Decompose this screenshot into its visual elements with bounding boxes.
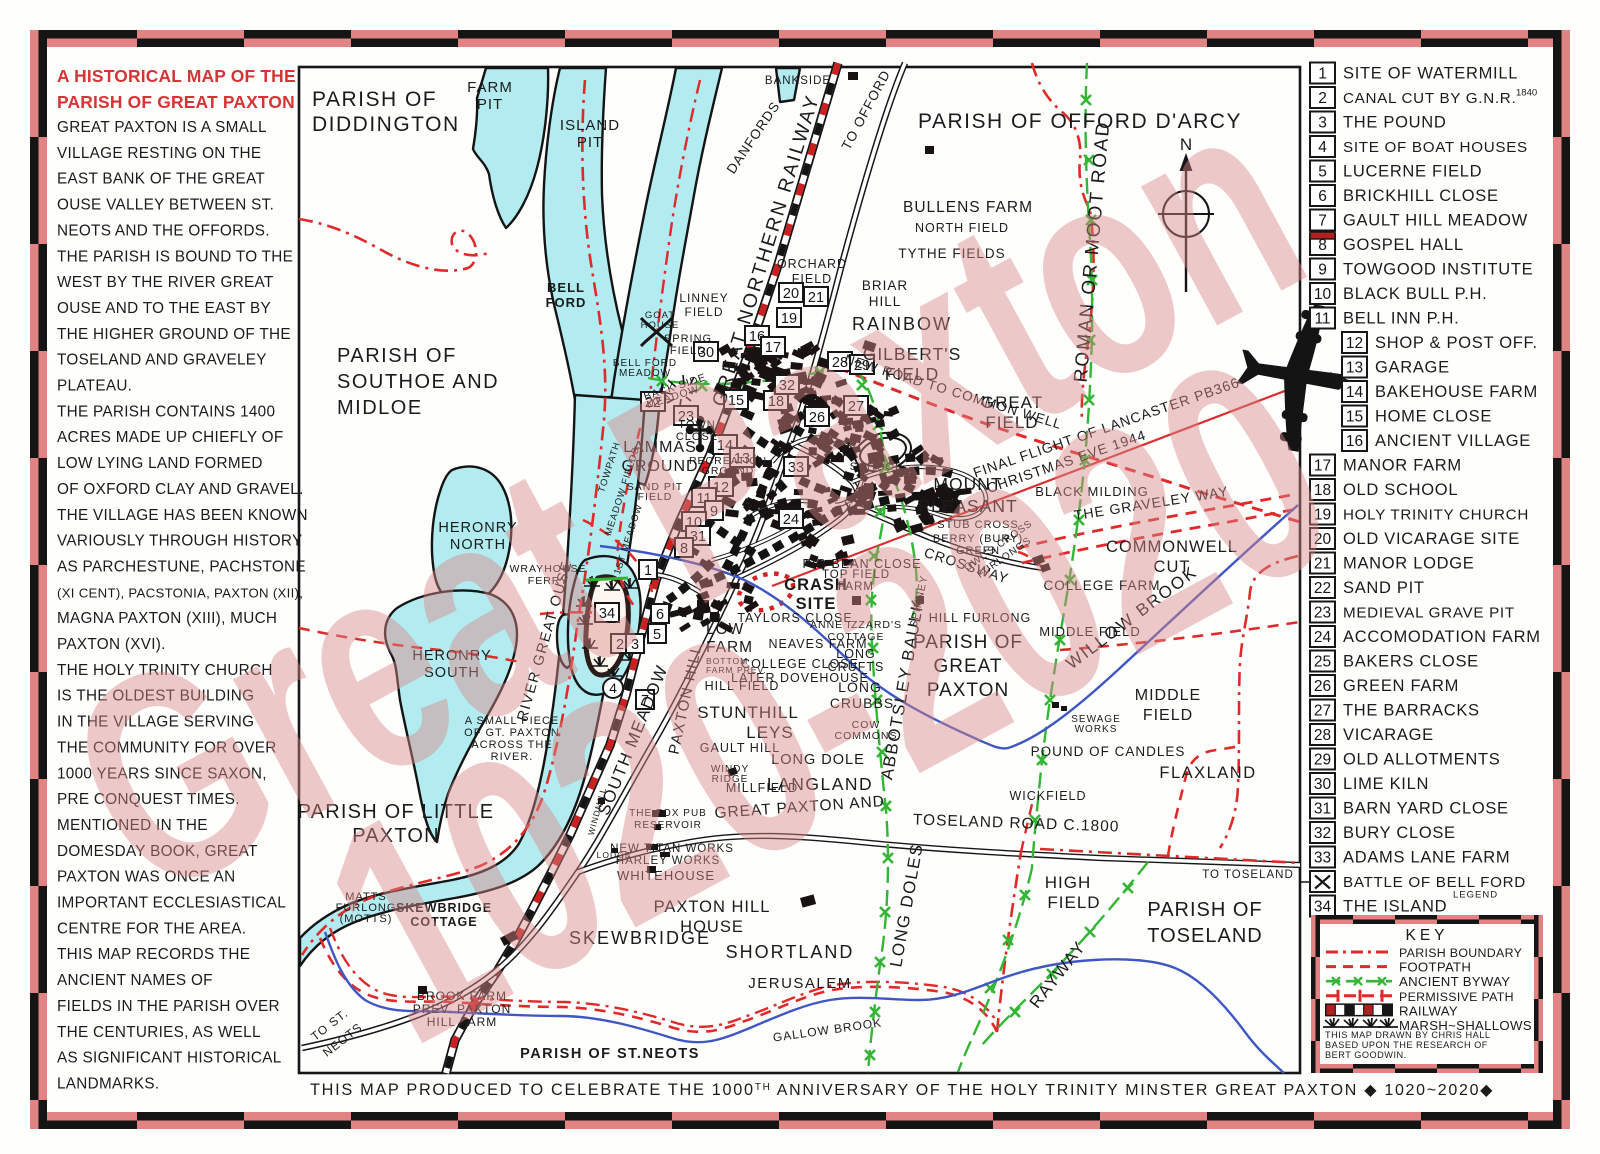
svg-text:FORD: FORD — [546, 295, 587, 310]
svg-text:31: 31 — [1314, 801, 1331, 818]
svg-text:OUSE AND TO THE EAST BY: OUSE AND TO THE EAST BY — [57, 300, 271, 317]
svg-text:1840: 1840 — [1516, 88, 1537, 99]
svg-text:FARM: FARM — [467, 79, 513, 96]
svg-text:GAULT HILL MEADOW: GAULT HILL MEADOW — [1343, 212, 1528, 230]
svg-text:15: 15 — [1346, 409, 1363, 426]
svg-text:KEY: KEY — [1405, 927, 1448, 944]
svg-text:1: 1 — [1318, 66, 1327, 83]
svg-text:PARISH OF GREAT PAXTON: PARISH OF GREAT PAXTON — [57, 92, 295, 112]
svg-text:NEOTS AND THE OFFORDS.: NEOTS AND THE OFFORDS. — [57, 222, 270, 239]
svg-text:ADAMS LANE FARM: ADAMS LANE FARM — [1343, 849, 1510, 867]
svg-text:26: 26 — [1314, 678, 1331, 695]
svg-text:25: 25 — [1314, 654, 1331, 671]
svg-text:33: 33 — [1314, 850, 1331, 867]
svg-text:HOLY TRINITY CHURCH: HOLY TRINITY CHURCH — [1343, 507, 1529, 524]
svg-text:VILLAGE RESTING ON THE: VILLAGE RESTING ON THE — [57, 145, 261, 162]
svg-text:SITE OF BOAT HOUSES: SITE OF BOAT HOUSES — [1343, 139, 1528, 156]
svg-text:AS SIGNIFICANT HISTORICAL: AS SIGNIFICANT HISTORICAL — [57, 1050, 282, 1067]
svg-text:OUSE VALLEY BETWEEN ST.: OUSE VALLEY BETWEEN ST. — [57, 197, 274, 214]
svg-text:LEGEND: LEGEND — [1453, 890, 1498, 901]
svg-text:BAKERS CLOSE: BAKERS CLOSE — [1343, 653, 1479, 671]
svg-text:6: 6 — [1318, 188, 1327, 205]
svg-text:PIT: PIT — [477, 96, 503, 113]
svg-text:14: 14 — [1346, 384, 1364, 401]
svg-text:PARISH OF: PARISH OF — [312, 88, 437, 111]
svg-text:VICARAGE: VICARAGE — [1343, 726, 1434, 744]
svg-text:MANOR FARM: MANOR FARM — [1343, 457, 1462, 475]
svg-text:OLD ALLOTMENTS: OLD ALLOTMENTS — [1343, 751, 1500, 769]
svg-text:29: 29 — [1314, 752, 1331, 769]
svg-text:THE PARISH IS BOUND TO THE: THE PARISH IS BOUND TO THE — [57, 248, 293, 265]
svg-text:LIME KILN: LIME KILN — [1343, 775, 1429, 793]
svg-text:GREAT PAXTON IS A SMALL: GREAT PAXTON IS A SMALL — [57, 119, 267, 136]
svg-text:30: 30 — [1314, 776, 1332, 793]
svg-text:BURY CLOSE: BURY CLOSE — [1343, 824, 1456, 842]
svg-text:3: 3 — [1318, 115, 1327, 132]
svg-text:PARISH OF: PARISH OF — [337, 345, 457, 367]
svg-text:BERT GOODWIN.: BERT GOODWIN. — [1325, 1050, 1407, 1060]
svg-text:PARISH BOUNDARY: PARISH BOUNDARY — [1399, 946, 1522, 960]
svg-text:OLD VICARAGE SITE: OLD VICARAGE SITE — [1343, 530, 1520, 548]
svg-text:CANAL CUT BY G.N.R.: CANAL CUT BY G.N.R. — [1343, 90, 1516, 107]
svg-text:SITE OF WATERMILL: SITE OF WATERMILL — [1343, 65, 1518, 83]
svg-text:PLATEAU.: PLATEAU. — [57, 378, 132, 395]
svg-text:DIDDINGTON: DIDDINGTON — [312, 113, 460, 136]
svg-text:FIELDS IN THE PARISH OVER: FIELDS IN THE PARISH OVER — [57, 998, 280, 1015]
svg-text:ANCIENT VILLAGE: ANCIENT VILLAGE — [1375, 432, 1531, 450]
svg-text:THE HIGHER GROUND OF THE: THE HIGHER GROUND OF THE — [57, 326, 291, 343]
svg-text:OLD SCHOOL: OLD SCHOOL — [1343, 481, 1458, 499]
svg-text:28: 28 — [1314, 727, 1331, 744]
svg-text:HIGH: HIGH — [1045, 873, 1092, 892]
svg-text:ACCOMODATION FARM: ACCOMODATION FARM — [1343, 628, 1541, 646]
svg-text:THE VILLAGE HAS BEEN KNOWN: THE VILLAGE HAS BEEN KNOWN — [57, 507, 308, 524]
svg-text:THE ISLAND: THE ISLAND — [1343, 898, 1447, 916]
svg-text:OF OXFORD CLAY AND GRAVEL.: OF OXFORD CLAY AND GRAVEL. — [57, 481, 304, 498]
svg-text:32: 32 — [1314, 825, 1331, 842]
svg-text:BARN YARD CLOSE: BARN YARD CLOSE — [1343, 800, 1509, 818]
svg-text:FOOTPATH: FOOTPATH — [1399, 960, 1471, 975]
svg-text:7: 7 — [1318, 213, 1327, 230]
svg-text:SHOP & POST OFF.: SHOP & POST OFF. — [1375, 334, 1538, 352]
svg-text:27: 27 — [1314, 703, 1331, 720]
svg-text:TOSELAND: TOSELAND — [1147, 925, 1262, 947]
svg-text:FIELD: FIELD — [1047, 893, 1100, 912]
svg-text:EAST BANK OF THE GREAT: EAST BANK OF THE GREAT — [57, 171, 265, 188]
svg-text:12: 12 — [1346, 335, 1363, 352]
svg-text:GARAGE: GARAGE — [1375, 359, 1450, 377]
svg-text:THE POUND: THE POUND — [1343, 114, 1446, 132]
svg-text:2: 2 — [1318, 90, 1327, 107]
svg-text:TO TOSELAND: TO TOSELAND — [1202, 869, 1294, 881]
svg-text:16: 16 — [1346, 433, 1363, 450]
svg-text:BAKEHOUSE FARM: BAKEHOUSE FARM — [1375, 383, 1538, 401]
svg-text:GREEN FARM: GREEN FARM — [1343, 677, 1459, 695]
svg-text:HOME CLOSE: HOME CLOSE — [1375, 408, 1492, 426]
svg-text:5: 5 — [1318, 164, 1327, 181]
svg-text:ANCIENT NAMES OF: ANCIENT NAMES OF — [57, 972, 213, 989]
svg-text:THE CENTURIES, AS WELL: THE CENTURIES, AS WELL — [57, 1024, 261, 1041]
svg-text:BELL: BELL — [547, 280, 585, 295]
svg-text:PIT: PIT — [577, 134, 603, 151]
svg-text:MEDIEVAL GRAVE PIT: MEDIEVAL GRAVE PIT — [1343, 605, 1515, 622]
svg-text:ISLAND: ISLAND — [560, 117, 620, 134]
svg-text:BLACK BULL P.H.: BLACK BULL P.H. — [1343, 285, 1487, 303]
svg-text:TOWGOOD INSTITUTE: TOWGOOD INSTITUTE — [1343, 261, 1533, 279]
svg-text:THIS MAP RECORDS THE: THIS MAP RECORDS THE — [57, 946, 250, 963]
svg-text:SOUTHOE AND: SOUTHOE AND — [337, 371, 499, 393]
svg-text:LOW LYING LAND FORMED: LOW LYING LAND FORMED — [57, 455, 263, 472]
svg-text:SHORTLAND: SHORTLAND — [726, 942, 855, 962]
svg-text:ANCIENT BYWAY: ANCIENT BYWAY — [1399, 974, 1510, 989]
svg-text:MIDLOE: MIDLOE — [337, 397, 423, 419]
svg-text:ACRES MADE UP CHIEFLY OF: ACRES MADE UP CHIEFLY OF — [57, 429, 284, 446]
svg-text:17: 17 — [1314, 458, 1331, 475]
svg-text:RAILWAY: RAILWAY — [1399, 1003, 1458, 1018]
svg-text:BRICKHILL CLOSE: BRICKHILL CLOSE — [1343, 187, 1499, 205]
svg-text:BATTLE OF BELL FORD: BATTLE OF BELL FORD — [1343, 874, 1526, 891]
svg-text:THE BARRACKS: THE BARRACKS — [1343, 702, 1480, 720]
svg-text:THE PARISH CONTAINS 1400: THE PARISH CONTAINS 1400 — [57, 403, 275, 420]
svg-text:BANKSIDE: BANKSIDE — [765, 75, 831, 87]
svg-text:13: 13 — [1346, 360, 1363, 377]
svg-text:BELL INN P.H.: BELL INN P.H. — [1343, 310, 1459, 328]
svg-text:THIS MAP DRAWN BY CHRIS HALL: THIS MAP DRAWN BY CHRIS HALL — [1325, 1030, 1490, 1040]
svg-text:4: 4 — [1318, 139, 1327, 156]
svg-text:FLAXLAND: FLAXLAND — [1159, 764, 1256, 782]
svg-text:LUCERNE FIELD: LUCERNE FIELD — [1343, 163, 1482, 181]
svg-text:BASED UPON THE RESEARCH OF: BASED UPON THE RESEARCH OF — [1325, 1040, 1488, 1050]
svg-text:PARISH OF: PARISH OF — [1147, 899, 1262, 921]
svg-text:WEST BY THE RIVER GREAT: WEST BY THE RIVER GREAT — [57, 274, 274, 291]
svg-text:PERMISSIVE PATH: PERMISSIVE PATH — [1399, 990, 1514, 1004]
svg-text:JERUSALEM: JERUSALEM — [748, 975, 852, 992]
svg-text:GOSPEL HALL: GOSPEL HALL — [1343, 236, 1464, 254]
svg-text:A HISTORICAL MAP OF THE: A HISTORICAL MAP OF THE — [57, 66, 296, 86]
svg-text:LANDMARKS.: LANDMARKS. — [57, 1075, 159, 1092]
svg-text:34: 34 — [1314, 899, 1332, 916]
svg-text:TOSELAND AND GRAVELEY: TOSELAND AND GRAVELEY — [57, 352, 267, 369]
